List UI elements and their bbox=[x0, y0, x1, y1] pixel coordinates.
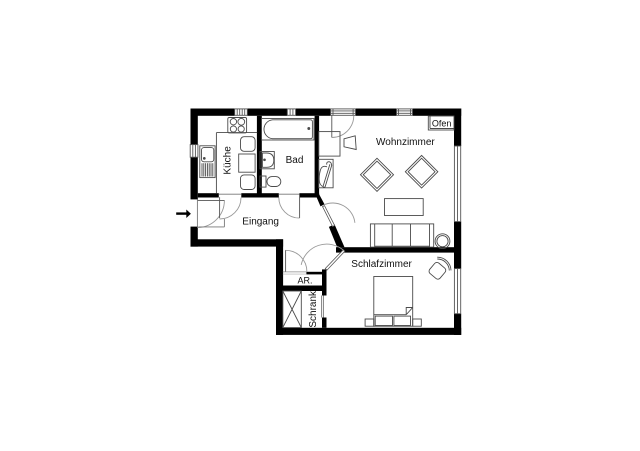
svg-text:Eingang: Eingang bbox=[242, 217, 279, 228]
svg-text:Küche: Küche bbox=[223, 146, 234, 175]
svg-text:Schlafzimmer: Schlafzimmer bbox=[351, 259, 412, 270]
svg-text:AR.: AR. bbox=[298, 276, 313, 286]
svg-text:Wohnzimmer: Wohnzimmer bbox=[376, 137, 435, 148]
svg-text:Schrank: Schrank bbox=[308, 290, 319, 328]
svg-text:Ofen: Ofen bbox=[432, 119, 452, 129]
svg-text:Bad: Bad bbox=[286, 155, 304, 166]
